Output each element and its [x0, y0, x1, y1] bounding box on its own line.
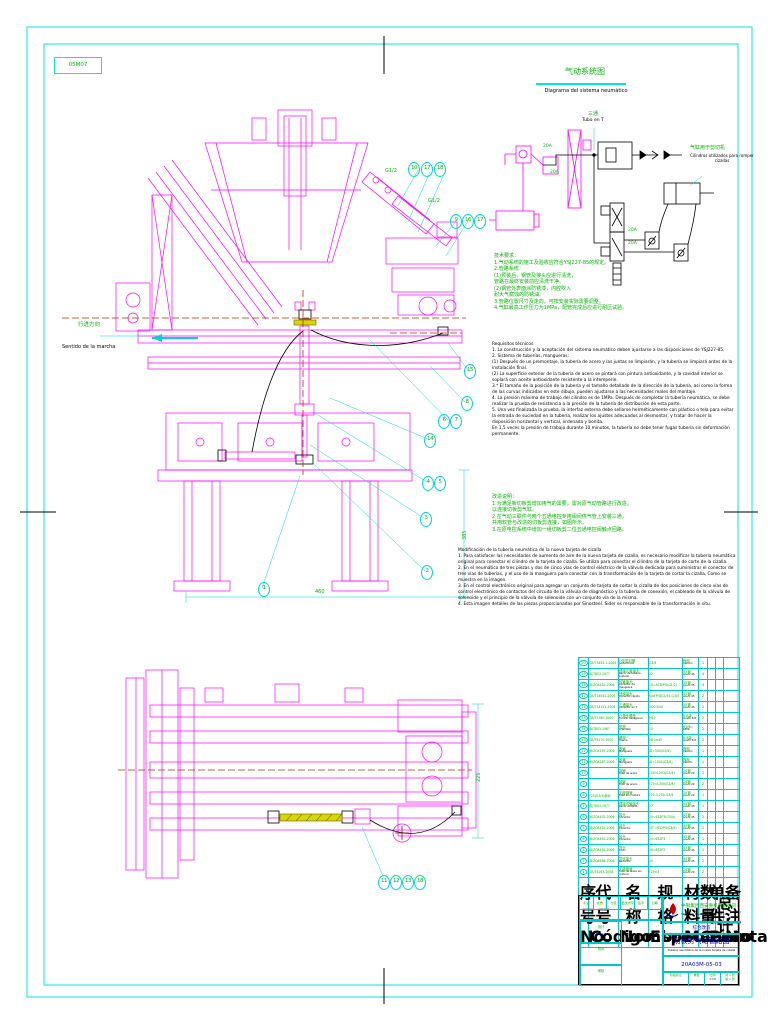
cylinder-label-zh: 气缸用于剪切机 — [690, 144, 725, 151]
bom-row: 6 JB/ZQ4432-2006 接头Conector 20=632P3(G3/… — [579, 812, 740, 823]
technical-requirements-zh: 技术要求：1.气动系统的施工及验收应符合YSJ227-85的规定。2.管路系统：… — [494, 253, 724, 312]
balloon-callout: 10 — [408, 162, 420, 177]
drawing-title-cell: 切板剪气动管路图 Tubería neumática de la nueva t… — [663, 934, 740, 956]
balloon-callout: 18 — [414, 875, 426, 890]
stage-label: 阶段标记 — [664, 973, 688, 977]
balloon-callout: 13 — [402, 875, 414, 890]
balloon-callout: 17 — [474, 214, 486, 229]
bom-table: 20 GB/T3452.1-2005 O形密封圈Junta tórica G3/… — [578, 657, 740, 878]
balloon-callout: 11 — [378, 875, 390, 890]
drawing-number-cell: 20A03M-05-03 — [663, 956, 740, 972]
note-line: (1) Después de un premontaje, la tubería… — [492, 360, 736, 372]
balloon-callout: 3 — [420, 512, 432, 527]
note-line: 4. La presión máxima de trabajo del cili… — [492, 396, 736, 408]
scale-value: 1:10 — [705, 977, 720, 981]
note-line: En 1,5 veces la presión de trabajo duran… — [492, 426, 736, 438]
note-line: 3.在原电控系统中增加一组切板剪二位五通电控阀触点回路。 — [492, 527, 732, 534]
balloon-callout: 2 — [421, 565, 433, 580]
pipe-size-label: 20A — [628, 228, 637, 233]
revision-header-cell: 标记 — [580, 897, 594, 909]
dimension-lines — [186, 470, 484, 838]
drawing-sheet: 05M07 行进方向 Sentido de la marcha 气动系统图 Di… — [0, 0, 768, 1024]
revision-header-cell: 分区 — [607, 897, 621, 909]
bom-row: 7 JB/T853-1977 焊接式管接头Racor soldado 27 45… — [579, 801, 740, 812]
tee-label-es: Tubo en T — [582, 118, 604, 123]
bom-row: 3 JB/ZQ4432-2006 弯头Codo 20=632P2 45钢Acer… — [579, 845, 740, 856]
note-line: 3.* El tamaño de la posición de la tuber… — [492, 384, 736, 396]
sheet-number: 第 1 张 — [721, 977, 739, 981]
balloon-callout: 18 — [434, 162, 446, 177]
bom-row: 17 GB/T14042-2006 快换接头Conector rápido KJ… — [579, 691, 740, 702]
direction-label-zh: 行进方向 — [78, 320, 100, 328]
bom-row: 10 钢管Tubo de acero L04=L203(G3/4) 20钢Ace… — [579, 768, 740, 779]
pipe-size-label: 20A — [543, 144, 552, 149]
bom-row: 4 JB/ZQ4432-2006 接头Conector 20=632P3 45钢… — [579, 834, 740, 845]
elevation-view — [116, 110, 462, 591]
note-line: 1. Para satisfacer las necesidades de au… — [458, 554, 736, 566]
direction-label-es: Sentido de la marcha — [62, 344, 115, 350]
modification-notes-es: Modificación de la tubería neumática de … — [458, 548, 736, 608]
bom-row: 2 JB/ZQ4636-2006 异径接头Reductor 20 45钢Acer… — [579, 856, 740, 867]
bom-row: 12 JB/ZQ4187-2006 胶管Manguera ID=500(G3/4… — [579, 746, 740, 757]
dim-385: 385 — [462, 530, 468, 540]
pipe-size-label: 20A — [628, 241, 637, 246]
modification-notes-zh: 改造说明：1.为满足新切板剪增加用气的需要，需对原气动管路进行改造，以连接切板剪… — [492, 494, 732, 533]
technical-requirements-es: Requisitos técnicos1. La construcción y … — [492, 342, 736, 438]
balloon-callout: 17 — [421, 162, 433, 177]
revision-header-cell: 更改文件号 — [621, 897, 635, 909]
bom-row: 11 JB/ZQ4187-2006 胶管Manguera ID=1000(G3/… — [579, 757, 740, 768]
note-line: 4.气缸最高工作压力为1MPa，配管完成后应进行耐压试验。 — [494, 305, 724, 312]
bom-row: 13 GB/T6170-2000 螺母Tuerca M10×45 8.8级Gra… — [579, 735, 740, 746]
bom-row: 16 GB/T14111-2006 三通接头Conector en T VDG3… — [579, 702, 740, 713]
dim-225: 225 — [476, 772, 482, 782]
balloon-callout: 12 — [390, 875, 402, 890]
bom-row: 8 F25(G3/4)钢管 无缝钢管Tubo sin costura F25-3… — [579, 790, 740, 801]
note-line: 4. Esta imagen detalles de las piezas pr… — [458, 602, 736, 608]
revision-grid: 标记处数分区更改文件号签字日期 — [579, 896, 663, 920]
bom-row: 9 钢管Tubo de acero F25=L300(G3/4) 20钢Acer… — [579, 779, 740, 790]
scale-row: 阶段标记 重量 比例 1:10 共 1 张 第 1 张 — [663, 972, 740, 986]
pneumatic-title-zh: 气动系统图 — [540, 66, 630, 77]
cylinder-label-es: Cilindros utilizados para romper cizalla… — [684, 153, 760, 163]
revision-header-cell: 处数 — [594, 897, 608, 909]
balloon-callout: 1 — [258, 582, 270, 597]
company-name-zh: 中钢集团西安重机有限公司 — [681, 903, 736, 909]
balloon-callout: 8 — [461, 396, 473, 411]
direction-arrow — [152, 334, 198, 342]
bom-row: 19 JB/T853-1977 焊接式管接头Racor de tubería s… — [579, 669, 740, 680]
balloon-callout: 7 — [450, 414, 462, 429]
title-block: 标记处数分区更改文件号签字日期 设计 2009.5 校对 — [578, 895, 739, 985]
bom-row: 18 JB/ZQ4432-2006 软管接头Conector de mangue… — [579, 680, 740, 691]
zone-code-box: 05M07 — [54, 57, 102, 74]
dim-460: 460 — [315, 589, 325, 595]
balloon-callout: 14 — [424, 433, 436, 448]
signature-cell: 审核 — [580, 965, 622, 986]
bom-row: 20 GB/T3452.1-2005 O形密封圈Junta tórica G3/… — [579, 658, 740, 669]
port-dim-lower: G1/2 — [428, 198, 440, 204]
bom-row: 15 GB/T5780-2000 六角头螺栓Tornillo hexagonal… — [579, 713, 740, 724]
drawing-number: 20A03M-05-03 — [664, 957, 739, 972]
company-cell: 中钢集团西安重机有限公司 Sinosteel Xi'an Machinery C… — [663, 896, 740, 922]
company-name-en: Sinosteel Xi'an Machinery CO., LTD — [681, 912, 730, 916]
balloon-callout: 5 — [434, 476, 446, 491]
revision-header-cell: 日期 — [648, 897, 662, 909]
note-line: 2. En el neumático de tres piezas y dos … — [458, 566, 736, 584]
note-line: 3. En el control electrónico original pa… — [458, 584, 736, 602]
signature-cell: 设计 2009.5 — [580, 921, 622, 943]
company-logo — [666, 902, 680, 918]
project-cell: 综合改造 — [663, 922, 740, 934]
pipe-size-label: 20A — [550, 170, 559, 175]
weight-label: 重量 — [689, 973, 704, 977]
note-line: 5. Una vez finalizada la prueba, la inte… — [492, 408, 736, 426]
circuit-frl-magenta — [489, 130, 591, 230]
bom-rows: 20 GB/T3452.1-2005 O形密封圈Junta tórica G3/… — [579, 658, 740, 878]
note-line: (2) La superficie exterior de la tubería… — [492, 372, 736, 384]
centerlines — [62, 290, 472, 770]
tee-label-zh: 三通 — [588, 110, 598, 117]
signature-grid: 设计 2009.5 校对 审核 工艺 — [579, 920, 663, 986]
pneumatic-title-es: Diagrama del sistema neumático — [516, 88, 656, 94]
balloon-callout: 15 — [464, 364, 476, 379]
drawing-title-es: Tubería neumática de la nueva tarjeta de… — [664, 948, 739, 952]
drawing-title-zh: 切板剪气动管路图 — [664, 935, 739, 948]
revision-header-cell: 签字 — [635, 897, 649, 909]
plan-view — [126, 670, 476, 878]
bom-row: 5 JB/ZQ4432-2006 接头Conector 45°=632P3(G3… — [579, 823, 740, 834]
port-dim-upper: G1/2 — [385, 168, 397, 174]
balloon-callout: 6 — [438, 414, 450, 429]
bom-row: 14 JB/T853-1987 垫圈Arandela 10 65Mn65Mn 2 — [579, 724, 740, 735]
balloon-callout: 16 — [462, 214, 474, 229]
bom-row: 1 GB/T8163-2008 无缝钢管Tubo de acero sin co… — [579, 867, 740, 878]
signature-cell: 校对 — [580, 943, 622, 965]
balloon-callout: 9 — [450, 214, 462, 229]
balloon-callout: 4 — [422, 476, 434, 491]
